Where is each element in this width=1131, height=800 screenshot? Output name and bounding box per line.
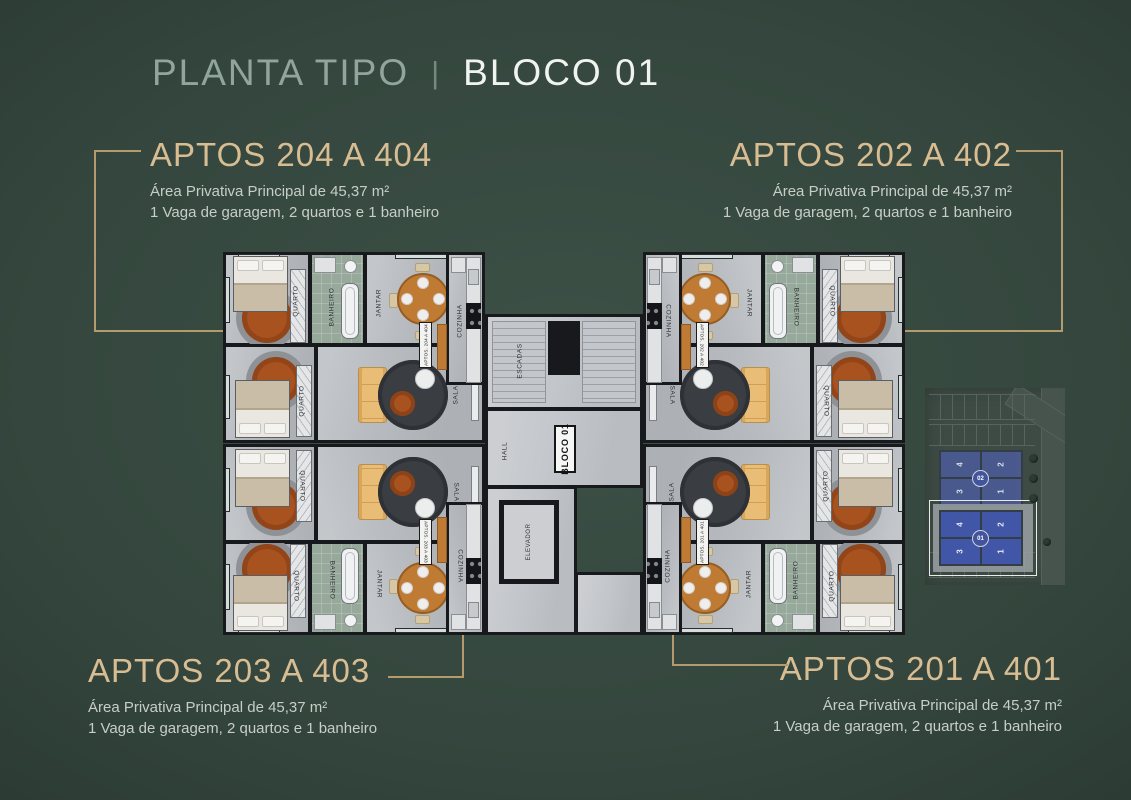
bedroom-1: QUARTO xyxy=(817,541,905,635)
plate xyxy=(401,582,413,594)
apartment-tag-box: APTOS. 203 A 403 xyxy=(419,519,432,565)
bathtub xyxy=(341,283,359,339)
callout-line-202 xyxy=(1016,150,1063,152)
stairs-label: ESCADAS xyxy=(517,343,524,378)
bed xyxy=(838,380,893,438)
pillows xyxy=(239,423,286,434)
page-title: PLANTA TIPO | BLOCO 01 xyxy=(152,52,660,94)
bath-counter xyxy=(314,614,336,630)
stove xyxy=(647,303,662,329)
bathroom: BANHEIRO xyxy=(762,252,819,346)
kitchen-label: COZINHA xyxy=(457,549,464,582)
plate xyxy=(433,293,445,305)
bedroom-2: QUARTO xyxy=(811,344,905,443)
unit-features-204: 1 Vaga de garagem, 2 quartos e 1 banheir… xyxy=(150,202,439,223)
sideboard xyxy=(681,517,691,563)
pillows xyxy=(239,453,286,464)
block-label-box: BLOCO 01 xyxy=(554,425,576,473)
bed xyxy=(235,380,290,438)
stove xyxy=(647,558,662,584)
bed xyxy=(235,449,290,507)
dining-chair xyxy=(698,615,713,624)
tree xyxy=(1043,538,1051,546)
bathroom-label: BANHEIRO xyxy=(329,288,336,327)
parking-row xyxy=(929,424,1035,446)
plate xyxy=(699,277,711,289)
unit-features-203: 1 Vaga de garagem, 2 quartos e 1 banheir… xyxy=(88,718,377,739)
pouf xyxy=(693,369,713,389)
pouf xyxy=(713,471,738,496)
apartment-tag: APTOS. 203 A 403 xyxy=(423,521,428,563)
plate xyxy=(683,293,695,305)
blanket xyxy=(841,283,894,311)
elevator-shaft: ELEVADOR xyxy=(499,500,559,584)
blanket xyxy=(839,381,892,410)
tree xyxy=(1029,494,1038,503)
kitchen-label: COZINHA xyxy=(665,304,672,337)
core-lower-strip xyxy=(575,572,643,635)
plate xyxy=(417,309,429,321)
pillows xyxy=(842,423,889,434)
blanket xyxy=(841,576,894,604)
pouf xyxy=(693,498,713,518)
parking-row xyxy=(929,394,1035,420)
callout-line-204 xyxy=(94,150,96,332)
pillows xyxy=(842,453,889,464)
stove xyxy=(466,303,481,329)
kitchen: COZINHA xyxy=(446,252,485,385)
bathroom: BANHEIRO xyxy=(762,541,819,635)
apartment-tag: APTOS. 201 A 401 xyxy=(700,521,705,563)
pouf xyxy=(415,498,435,518)
pillows xyxy=(237,616,284,627)
unit-area-202: Área Privativa Principal de 45,37 m² xyxy=(723,181,1012,202)
fridge xyxy=(451,614,466,630)
unit-features-202: 1 Vaga de garagem, 2 quartos e 1 banheir… xyxy=(723,202,1012,223)
bathtub xyxy=(341,548,359,604)
dining-chair xyxy=(415,615,430,624)
bed xyxy=(840,256,895,312)
title-right: BLOCO 01 xyxy=(463,52,660,94)
bathtub xyxy=(769,548,787,604)
apartment-tag-box: APTOS. 202 A 402 xyxy=(696,322,709,368)
elevator-lobby: ELEVADOR xyxy=(485,486,577,635)
kitchen: COZINHA xyxy=(643,502,682,635)
sink xyxy=(344,614,357,627)
stair-flight xyxy=(582,321,636,403)
sink xyxy=(344,260,357,273)
bath-counter xyxy=(314,257,336,273)
hall-room: HALL BLOCO 01 xyxy=(485,408,643,488)
sideboard xyxy=(681,324,691,370)
callout-line-202 xyxy=(905,330,1063,332)
apartment-tag: APTOS. 202 A 402 xyxy=(700,324,705,366)
unit-label-202: APTOS 202 A 402 Área Privativa Principal… xyxy=(723,136,1012,223)
unit-desc-202: Área Privativa Principal de 45,37 m² 1 V… xyxy=(723,181,1012,223)
living-label: SALA xyxy=(453,482,460,501)
unit-name-204: APTOS 204 A 404 xyxy=(150,136,439,174)
bed xyxy=(233,575,288,631)
core: ESCADAS HALL BLOCO 01 ELEVADOR xyxy=(485,252,643,635)
unit-label-203: APTOS 203 A 403 Área Privativa Principal… xyxy=(88,652,377,739)
kitchen-label: COZINHA xyxy=(457,304,464,337)
unit-name-202: APTOS 202 A 402 xyxy=(723,136,1012,174)
fridge xyxy=(662,257,677,273)
plate xyxy=(417,566,429,578)
bedroom-1: QUARTO xyxy=(817,252,905,346)
bathroom-label: BANHEIRO xyxy=(793,561,800,600)
living-label: SALA xyxy=(453,385,460,404)
window xyxy=(681,254,733,259)
bedroom-label: QUARTO xyxy=(823,470,830,501)
apartment-plan-bottom-left: QUARTO BANHEIRO JANTAR xyxy=(223,444,485,635)
dining-chair xyxy=(698,263,713,272)
bedroom-label: QUARTO xyxy=(823,385,830,416)
callout-line-204 xyxy=(94,150,141,152)
kitchen: COZINHA xyxy=(643,252,682,385)
bedroom-label: QUARTO xyxy=(829,285,836,316)
blanket xyxy=(234,576,287,604)
plate xyxy=(683,582,695,594)
window xyxy=(898,468,903,512)
dining-label: JANTAR xyxy=(376,570,383,598)
bedroom-2: QUARTO xyxy=(223,444,317,543)
bedroom-label: QUARTO xyxy=(293,285,300,316)
bathroom: BANHEIRO xyxy=(309,252,366,346)
living-label: SALA xyxy=(669,482,676,501)
bedroom-label: QUARTO xyxy=(293,570,300,601)
elevator-label: ELEVADOR xyxy=(526,523,532,560)
floor-plan: QUARTO BANHEIRO JANTAR xyxy=(223,252,905,635)
block-label: BLOCO 01 xyxy=(560,423,570,474)
window xyxy=(225,277,230,323)
plate xyxy=(699,309,711,321)
sink xyxy=(771,614,784,627)
bathtub xyxy=(769,283,787,339)
blanket xyxy=(234,283,287,311)
window xyxy=(225,375,230,419)
dining-label: JANTAR xyxy=(746,570,753,598)
callout-line-201 xyxy=(672,664,788,666)
plate xyxy=(715,582,727,594)
dining-chair xyxy=(730,579,739,594)
bed xyxy=(233,256,288,312)
apartment-tag-box: APTOS. 201 A 401 xyxy=(696,519,709,565)
pillows xyxy=(237,260,284,271)
plate xyxy=(401,293,413,305)
blanket xyxy=(839,477,892,506)
callout-line-204 xyxy=(94,330,224,332)
window xyxy=(898,375,903,419)
plate xyxy=(699,598,711,610)
tree xyxy=(1029,454,1038,463)
plate xyxy=(433,582,445,594)
hall-label: HALL xyxy=(502,442,509,461)
window xyxy=(395,254,447,259)
unit-name-203: APTOS 203 A 403 xyxy=(88,652,377,690)
window xyxy=(225,468,230,512)
fridge xyxy=(451,257,466,273)
unit-area-203: Área Privativa Principal de 45,37 m² xyxy=(88,697,377,718)
bathroom-label: BANHEIRO xyxy=(329,561,336,600)
dining-label: JANTAR xyxy=(746,289,753,317)
unit-features-201: 1 Vaga de garagem, 2 quartos e 1 banheir… xyxy=(773,716,1062,737)
unit-desc-201: Área Privativa Principal de 45,37 m² 1 V… xyxy=(773,695,1062,737)
apartment-plan-bottom-right: QUARTO BANHEIRO JANTAR xyxy=(643,444,905,635)
pouf xyxy=(390,391,415,416)
window xyxy=(395,628,447,633)
bedroom-1: QUARTO xyxy=(223,252,311,346)
unit-desc-204: Área Privativa Principal de 45,37 m² 1 V… xyxy=(150,181,439,223)
living-rug xyxy=(378,360,448,430)
unit-label-204: APTOS 204 A 404 Área Privativa Principal… xyxy=(150,136,439,223)
window xyxy=(898,277,903,323)
bathroom-label: BANHEIRO xyxy=(793,288,800,327)
blanket xyxy=(236,381,289,410)
bathroom: BANHEIRO xyxy=(309,541,366,635)
bath-counter xyxy=(792,257,814,273)
unit-area-201: Área Privativa Principal de 45,37 m² xyxy=(773,695,1062,716)
living-label: SALA xyxy=(669,385,676,404)
sink xyxy=(771,260,784,273)
bath-counter xyxy=(792,614,814,630)
fridge xyxy=(662,614,677,630)
site-map: 4 2 3 1 02 4 2 3 1 01 xyxy=(925,388,1065,585)
bedroom-label: QUARTO xyxy=(299,470,306,501)
pouf xyxy=(390,471,415,496)
blanket xyxy=(236,477,289,506)
unit-name-201: APTOS 201 A 401 xyxy=(773,650,1062,688)
plate xyxy=(699,566,711,578)
window xyxy=(225,564,230,610)
bed xyxy=(838,449,893,507)
apartment-plan-top-left: QUARTO BANHEIRO JANTAR xyxy=(223,252,485,443)
plate xyxy=(417,598,429,610)
stairs-room: ESCADAS xyxy=(485,314,643,410)
bedroom-label: QUARTO xyxy=(829,570,836,601)
plate xyxy=(715,293,727,305)
callout-line-203 xyxy=(388,676,464,678)
bedroom-1: QUARTO xyxy=(223,541,311,635)
title-separator: | xyxy=(431,55,441,91)
title-left: PLANTA TIPO xyxy=(152,52,409,94)
kitchen: COZINHA xyxy=(446,502,485,635)
plate xyxy=(417,277,429,289)
poster: PLANTA TIPO | BLOCO 01 APTOS 204 A 404 Á… xyxy=(0,0,1131,800)
apartment-plan-top-right: QUARTO BANHEIRO JANTAR xyxy=(643,252,905,443)
pillows xyxy=(844,616,891,627)
bedroom-label: QUARTO xyxy=(299,385,306,416)
bed xyxy=(840,575,895,631)
site-block-01-number: 01 xyxy=(972,530,989,547)
dining-chair xyxy=(415,263,430,272)
unit-area-204: Área Privativa Principal de 45,37 m² xyxy=(150,181,439,202)
pouf xyxy=(415,369,435,389)
stair-landing xyxy=(548,321,580,375)
kitchen-sink xyxy=(649,269,660,285)
kitchen-label: COZINHA xyxy=(665,549,672,582)
dining-chair xyxy=(730,293,739,308)
site-block-02-number: 02 xyxy=(972,470,989,487)
kitchen-sink xyxy=(649,602,660,618)
pouf xyxy=(713,391,738,416)
sideboard xyxy=(437,517,447,563)
window xyxy=(898,564,903,610)
callout-line-202 xyxy=(1061,150,1063,332)
unit-desc-203: Área Privativa Principal de 45,37 m² 1 V… xyxy=(88,697,377,739)
apartment-tag: APTOS. 204 A 404 xyxy=(423,324,428,366)
sideboard xyxy=(437,324,447,370)
stove xyxy=(466,558,481,584)
unit-label-201: APTOS 201 A 401 Área Privativa Principal… xyxy=(773,650,1062,737)
kitchen-sink xyxy=(468,602,479,618)
dining-label: JANTAR xyxy=(376,289,383,317)
window xyxy=(681,628,733,633)
tree xyxy=(1029,474,1038,483)
apartment-tag-box: APTOS. 204 A 404 xyxy=(419,322,432,368)
pillows xyxy=(844,260,891,271)
bedroom-2: QUARTO xyxy=(223,344,317,443)
bedroom-2: QUARTO xyxy=(811,444,905,543)
kitchen-sink xyxy=(468,269,479,285)
